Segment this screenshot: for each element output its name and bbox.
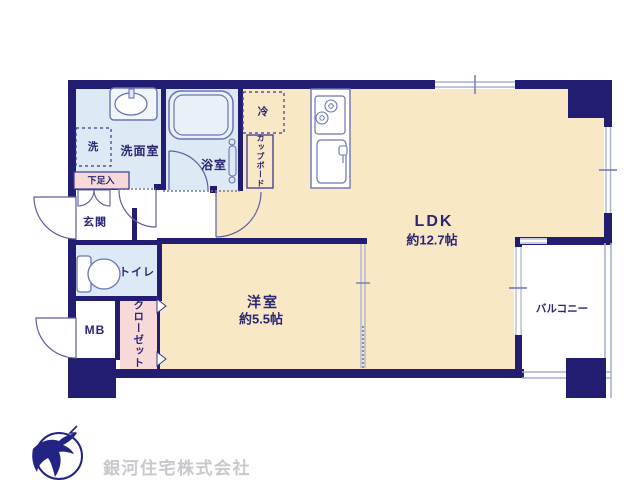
shoe-cabinet-door-right [94,190,110,206]
wall-toilet-right [157,240,162,301]
front-door-swing [34,197,76,239]
floorplan-drawing [0,0,640,480]
western-room-label: 洋室 [247,295,279,309]
refrigerator-label: 冷 [258,107,269,118]
washer-label: 洗 [88,142,99,153]
wall-mb-right [115,299,120,360]
vanity-sink-icon [110,88,157,120]
shoe-cabinet-door-left [78,190,94,206]
western-room-area: 約5.5帖 [239,313,283,326]
floorplan-page: 洗 洗面室 浴室 下足入 玄関 トイレ MB クローゼット カップボード 冷 洋… [0,0,640,480]
wall-bottom [68,369,524,378]
wall-bathroom-right [238,89,243,191]
bird-logo-icon [32,433,77,477]
company-name: 銀河住宅株式会社 [103,454,251,479]
ldk-entry-floor [216,190,246,240]
wall-ldk-door-jamb [210,186,217,193]
meter-box-label: MB [85,324,106,336]
toilet-label: トイレ [119,268,155,279]
kitchen-unit-icon [311,89,350,188]
shoe-cabinet-label: 下足入 [87,177,114,186]
ldk-area: 約12.7帖 [406,234,457,247]
entrance-label: 玄関 [83,218,107,229]
closet-label: クローゼット [133,300,144,369]
toilet-icon [77,256,120,292]
ldk-label: LDK [415,214,454,230]
mb-door-swing [36,318,76,358]
wall-washroom-bathroom [161,89,166,188]
wall-entrance-step [132,208,137,243]
faucet-icon [339,146,347,155]
cupboard-label: カップボード [256,134,264,188]
wall-western-top [157,238,367,244]
corner-block-balcony-top [566,358,606,398]
wall-toilet-top [68,240,162,245]
washroom-label: 洗面室 [120,145,159,157]
corner-block-bottomleft [68,358,116,398]
company-logo [32,426,82,479]
window-balcony-door [514,247,523,335]
bathroom-label: 浴室 [201,159,227,171]
washroom-door-swing [119,190,156,227]
balcony-label: バルコニー [536,304,588,315]
corner-block-topright [568,84,608,118]
bathtub-icon [169,91,233,139]
